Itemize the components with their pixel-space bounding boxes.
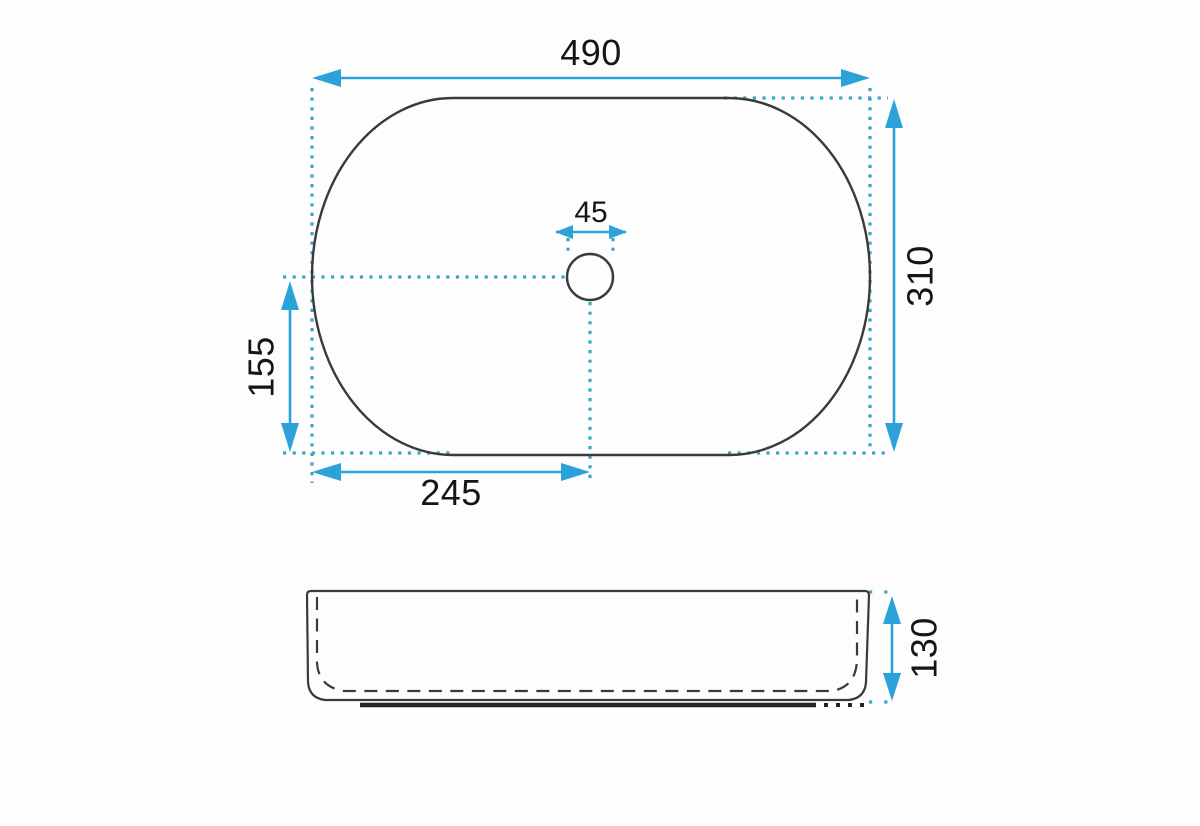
side-view: 130 [307,591,945,705]
arrowhead-490-left [312,69,341,87]
arrowhead-310-bottom [885,423,903,452]
dimension-lines [290,78,894,472]
label-offset-155: 155 [241,336,282,398]
arrowhead-310-top [885,99,903,128]
label-width-490: 490 [560,32,622,73]
arrowhead-155-top [281,281,299,310]
dimension-labels: 490 310 45 155 245 [241,32,941,513]
technical-drawing-canvas: 490 310 45 155 245 [0,0,1200,826]
arrowhead-490-right [841,69,870,87]
arrowhead-245-left [312,463,341,481]
arrowhead-45-right [609,225,627,239]
top-view: 490 310 45 155 245 [241,32,941,513]
arrowhead-245-right [561,463,590,481]
arrowhead-155-bottom [281,423,299,452]
sink-dimension-drawing: 490 310 45 155 245 [0,0,1200,826]
side-dimension-labels: 130 [904,617,945,679]
side-inner-basin-dashed [317,597,857,691]
basin-outline-group [312,98,870,455]
label-drain-45: 45 [574,196,607,229]
side-outer-profile [307,591,869,700]
arrowhead-45-left [555,225,573,239]
label-height-310: 310 [900,245,941,307]
label-side-height-130: 130 [904,617,945,679]
label-offset-245: 245 [420,472,482,513]
drain-hole [567,254,613,300]
arrowhead-130-top [883,596,901,624]
side-outline-group [307,591,869,700]
arrowhead-130-bottom [883,673,901,701]
basin-rim-outline [312,98,870,455]
